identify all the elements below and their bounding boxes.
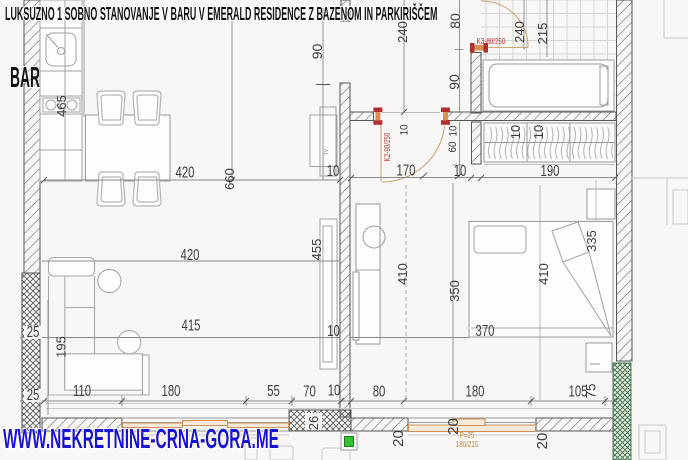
svg-text:TV: TV [324, 148, 330, 155]
svg-text:90: 90 [446, 74, 462, 90]
svg-text:10: 10 [454, 161, 467, 179]
svg-text:410: 410 [395, 263, 410, 285]
svg-text:410: 410 [536, 263, 551, 285]
svg-text:195: 195 [54, 336, 69, 358]
svg-text:350: 350 [447, 280, 462, 302]
svg-text:10: 10 [399, 124, 411, 135]
svg-text:10: 10 [448, 125, 460, 136]
svg-text:110: 110 [73, 381, 91, 399]
svg-text:170: 170 [397, 161, 416, 179]
svg-text:455: 455 [309, 239, 324, 261]
svg-text:415: 415 [182, 316, 201, 334]
svg-text:26: 26 [306, 416, 321, 430]
svg-text:80: 80 [373, 382, 386, 400]
svg-text:55: 55 [267, 381, 280, 399]
svg-text:P=25: P=25 [460, 431, 475, 440]
svg-text:25: 25 [27, 322, 40, 340]
svg-text:180/215: 180/215 [456, 440, 479, 449]
svg-text:240: 240 [512, 21, 527, 43]
svg-text:80: 80 [447, 13, 463, 29]
svg-text:K3-80/250: K3-80/250 [477, 37, 506, 46]
svg-text:190: 190 [541, 161, 560, 179]
svg-text:10: 10 [531, 125, 546, 139]
svg-text:20: 20 [390, 430, 407, 447]
svg-text:60: 60 [448, 141, 460, 152]
svg-text:10: 10 [328, 381, 341, 399]
svg-text:420: 420 [176, 163, 195, 181]
svg-text:240: 240 [395, 21, 410, 43]
svg-text:K2-90/250: K2-90/250 [383, 133, 392, 162]
svg-text:25: 25 [27, 385, 40, 403]
svg-text:180: 180 [162, 381, 181, 399]
svg-text:70: 70 [303, 382, 316, 400]
svg-text:180: 180 [466, 382, 485, 400]
svg-text:10: 10 [327, 161, 340, 179]
svg-text:420: 420 [181, 245, 200, 263]
svg-text:75: 75 [584, 383, 599, 398]
svg-text:465: 465 [54, 95, 69, 117]
svg-text:660: 660 [222, 168, 237, 190]
svg-text:20: 20 [534, 433, 551, 450]
svg-text:10: 10 [508, 125, 523, 139]
svg-text:370: 370 [476, 321, 495, 339]
svg-text:335: 335 [584, 230, 599, 252]
svg-text:215: 215 [535, 23, 550, 45]
svg-text:10: 10 [327, 321, 340, 339]
svg-text:90: 90 [309, 44, 325, 60]
